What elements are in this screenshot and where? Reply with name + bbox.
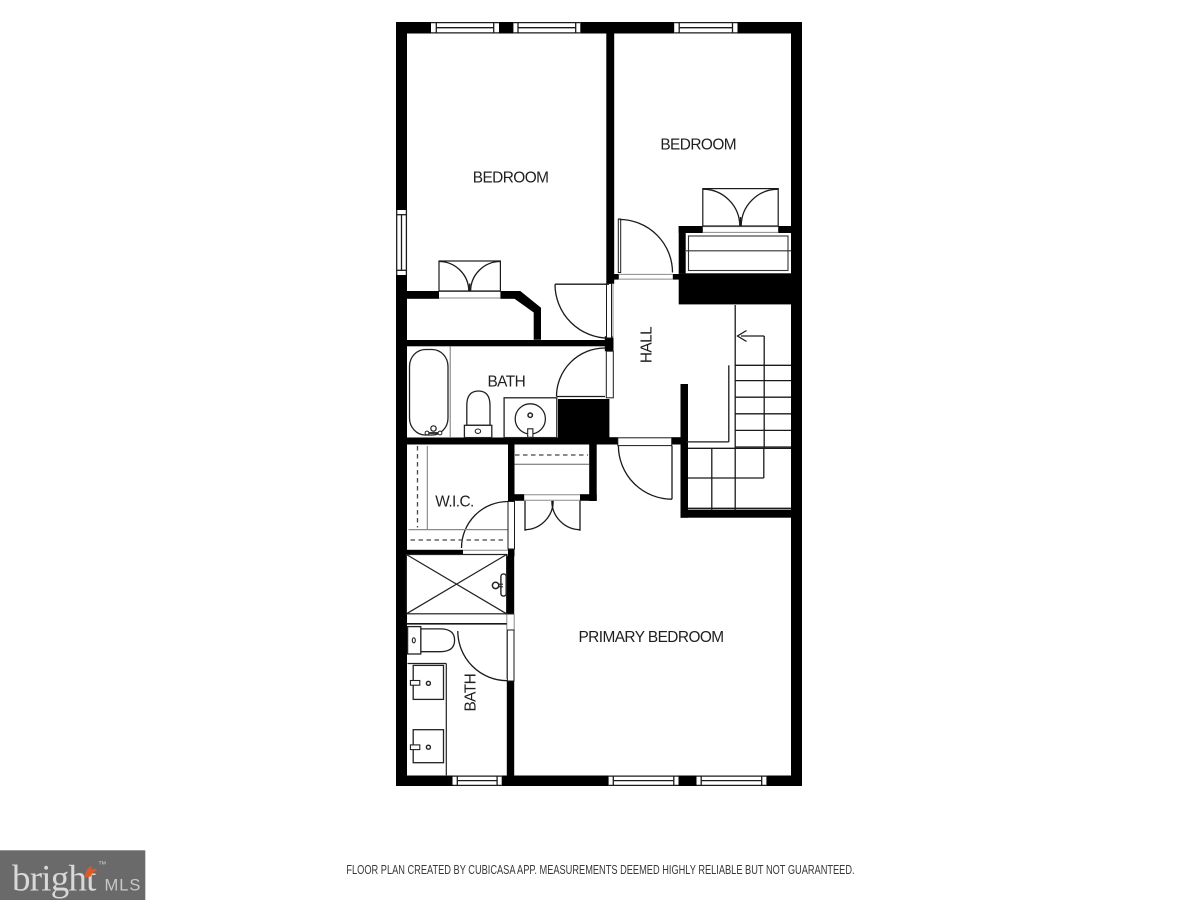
svg-text:BATH: BATH	[487, 374, 525, 391]
svg-text:W.I.C.: W.I.C.	[435, 493, 474, 510]
svg-text:PRIMARY BEDROOM: PRIMARY BEDROOM	[578, 629, 723, 646]
svg-text:BEDROOM: BEDROOM	[473, 169, 549, 186]
svg-text:BATH: BATH	[463, 674, 480, 712]
svg-text:FLOOR PLAN CREATED BY CUBICASA: FLOOR PLAN CREATED BY CUBICASA APP. MEAS…	[346, 864, 854, 878]
svg-text:BEDROOM: BEDROOM	[660, 137, 736, 154]
svg-text:MLS: MLS	[105, 877, 142, 895]
svg-text:HALL: HALL	[639, 326, 656, 363]
svg-text:™: ™	[98, 859, 107, 869]
svg-text:bright: bright	[12, 859, 97, 900]
